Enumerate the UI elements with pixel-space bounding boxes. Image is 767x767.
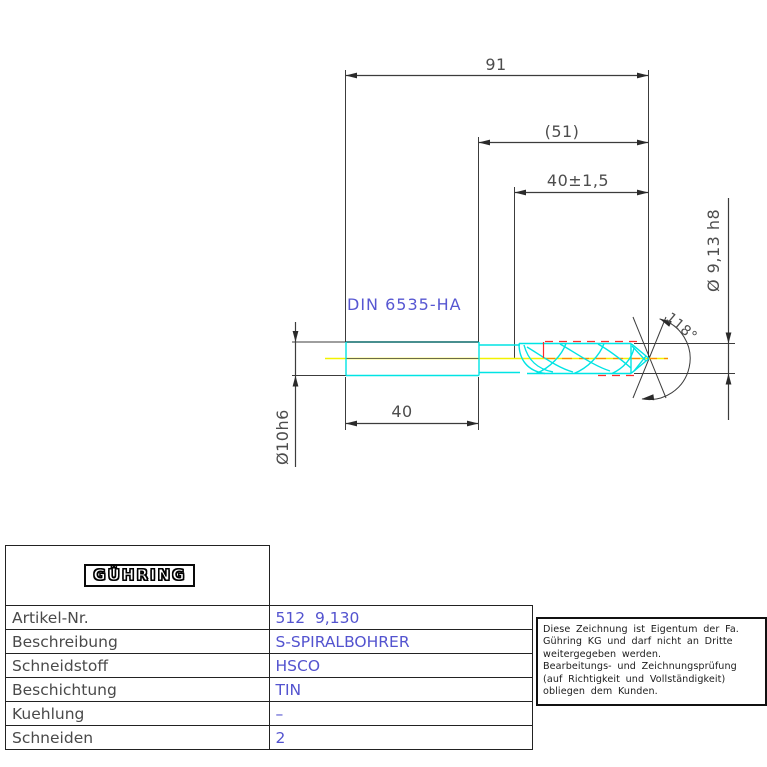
din-standard-label: DIN 6535-HA — [347, 295, 462, 314]
notice-line: Diese Zeichnung ist Eigentum der Fa. — [543, 624, 762, 636]
dim-point-diameter: Ø 9,13 h8 — [704, 209, 723, 292]
logo-cell: GÜHRING — [6, 546, 270, 606]
technical-drawing: 91 (51) 40±1,5 40 DIN 6535-HA Ø10h6 Ø 9,… — [0, 0, 767, 540]
notice-line: (auf Richtigkeit und Vollständigkeit) — [543, 674, 762, 686]
dimension-lines — [296, 76, 729, 468]
table-row: Beschreibung S-SPIRALBOHRER — [6, 630, 533, 654]
notice-line: weitergegeben werden. — [543, 649, 762, 661]
logo-row-spacer — [269, 546, 533, 606]
row-label-beschreibung: Beschreibung — [6, 630, 270, 654]
drawing-sheet: 91 (51) 40±1,5 40 DIN 6535-HA Ø10h6 Ø 9,… — [0, 0, 767, 767]
dim-point-angle: 118° — [662, 310, 700, 345]
row-label-schneiden: Schneiden — [6, 726, 270, 750]
table-row: Schneiden 2 — [6, 726, 533, 750]
dim-shank-length: 40 — [391, 402, 412, 421]
notice-line: Gühring KG und darf nicht an Dritte — [543, 636, 762, 648]
table-row: Schneidstoff HSCO — [6, 654, 533, 678]
dim-ref-length: (51) — [545, 122, 580, 141]
guehring-logo: GÜHRING — [84, 564, 195, 587]
row-value-artikel-nr: 512 9,130 — [269, 606, 533, 630]
notice-line: obliegen dem Kunden. — [543, 686, 762, 698]
row-label-schneidstoff: Schneidstoff — [6, 654, 270, 678]
table-row: Kuehlung – — [6, 702, 533, 726]
dim-shank-diameter: Ø10h6 — [273, 409, 292, 465]
row-value-schneidstoff: HSCO — [269, 654, 533, 678]
row-value-beschichtung: TIN — [269, 678, 533, 702]
dim-flute-length: 40±1,5 — [547, 171, 609, 190]
row-label-beschichtung: Beschichtung — [6, 678, 270, 702]
table-row: Artikel-Nr. 512 9,130 — [6, 606, 533, 630]
logo-row: GÜHRING — [6, 546, 533, 606]
dim-overall-length: 91 — [485, 55, 506, 74]
legal-notice-box: Diese Zeichnung ist Eigentum der Fa. Güh… — [536, 617, 767, 706]
row-label-kuehlung: Kuehlung — [6, 702, 270, 726]
notice-line: Bearbeitungs- und Zeichnungsprüfung — [543, 661, 762, 673]
row-label-artikel-nr: Artikel-Nr. — [6, 606, 270, 630]
row-value-kuehlung: – — [269, 702, 533, 726]
row-value-schneiden: 2 — [269, 726, 533, 750]
row-value-beschreibung: S-SPIRALBOHRER — [269, 630, 533, 654]
title-block: GÜHRING Artikel-Nr. 512 9,130 Beschreibu… — [5, 545, 533, 750]
table-row: Beschichtung TIN — [6, 678, 533, 702]
